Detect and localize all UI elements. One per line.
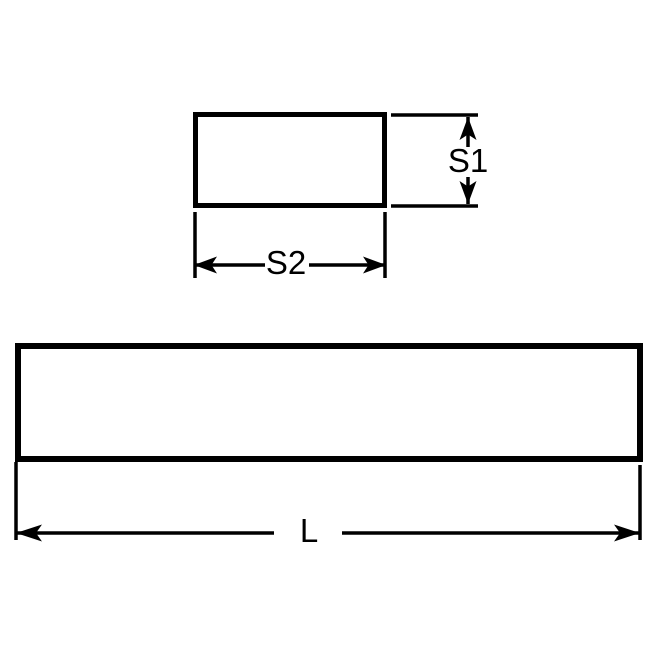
drawing-canvas: S1 S2 L	[0, 0, 670, 670]
cross-section-rectangle	[196, 115, 385, 206]
keystock-dimension-diagram: S1 S2 L	[0, 0, 670, 670]
s2-label: S2	[266, 244, 306, 281]
side-view: L	[16, 346, 640, 549]
side-view-rectangle	[18, 346, 640, 459]
s1-label: S1	[448, 142, 488, 179]
cross-section-view: S1 S2	[194, 115, 488, 282]
l-label: L	[300, 512, 318, 549]
